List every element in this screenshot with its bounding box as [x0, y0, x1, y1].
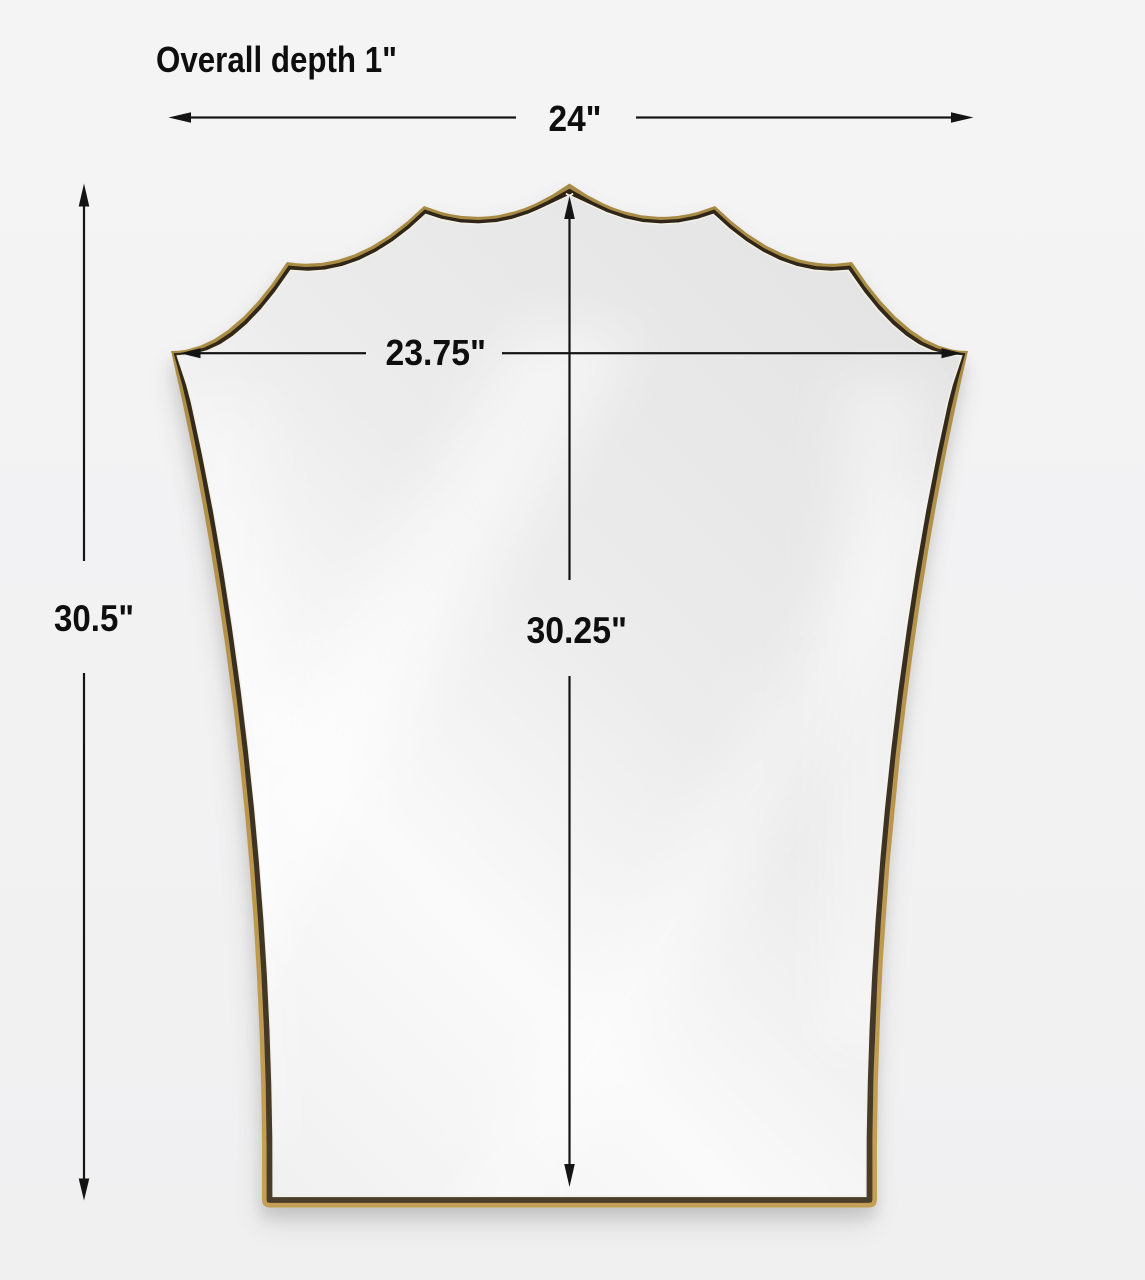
svg-text:24": 24" — [549, 98, 602, 139]
svg-text:30.5": 30.5" — [54, 598, 134, 639]
svg-text:23.75": 23.75" — [386, 332, 487, 373]
svg-text:Overall depth 1": Overall depth 1" — [156, 39, 397, 80]
svg-text:30.25": 30.25" — [527, 610, 628, 651]
